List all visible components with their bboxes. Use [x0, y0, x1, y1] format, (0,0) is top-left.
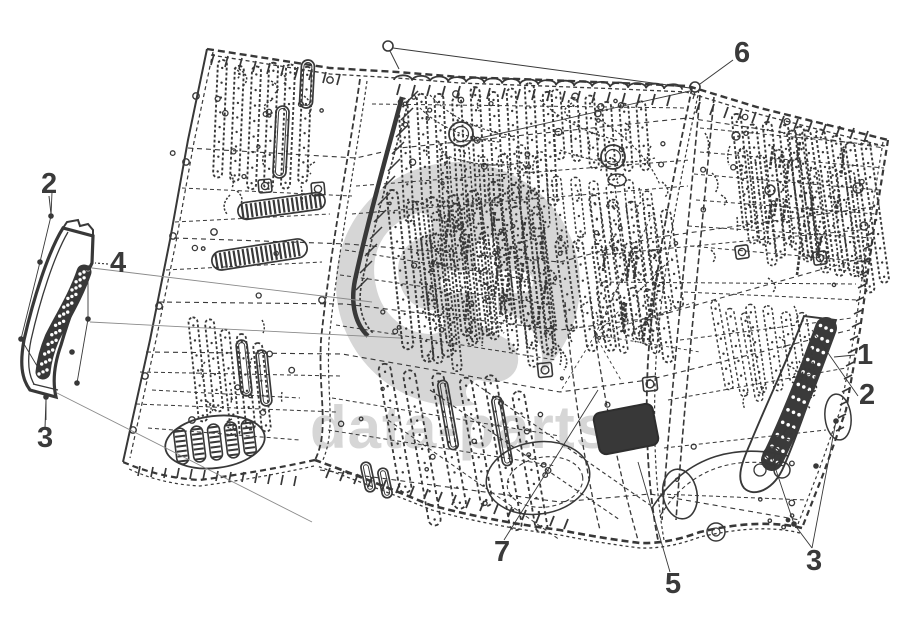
svg-text:7: 7 [494, 536, 510, 568]
svg-text:2: 2 [41, 168, 57, 200]
svg-text:1: 1 [857, 339, 873, 371]
svg-text:6: 6 [734, 37, 750, 69]
svg-text:2: 2 [859, 379, 875, 411]
svg-text:3: 3 [806, 545, 822, 577]
svg-text:5: 5 [665, 568, 681, 600]
svg-text:4: 4 [110, 247, 126, 279]
